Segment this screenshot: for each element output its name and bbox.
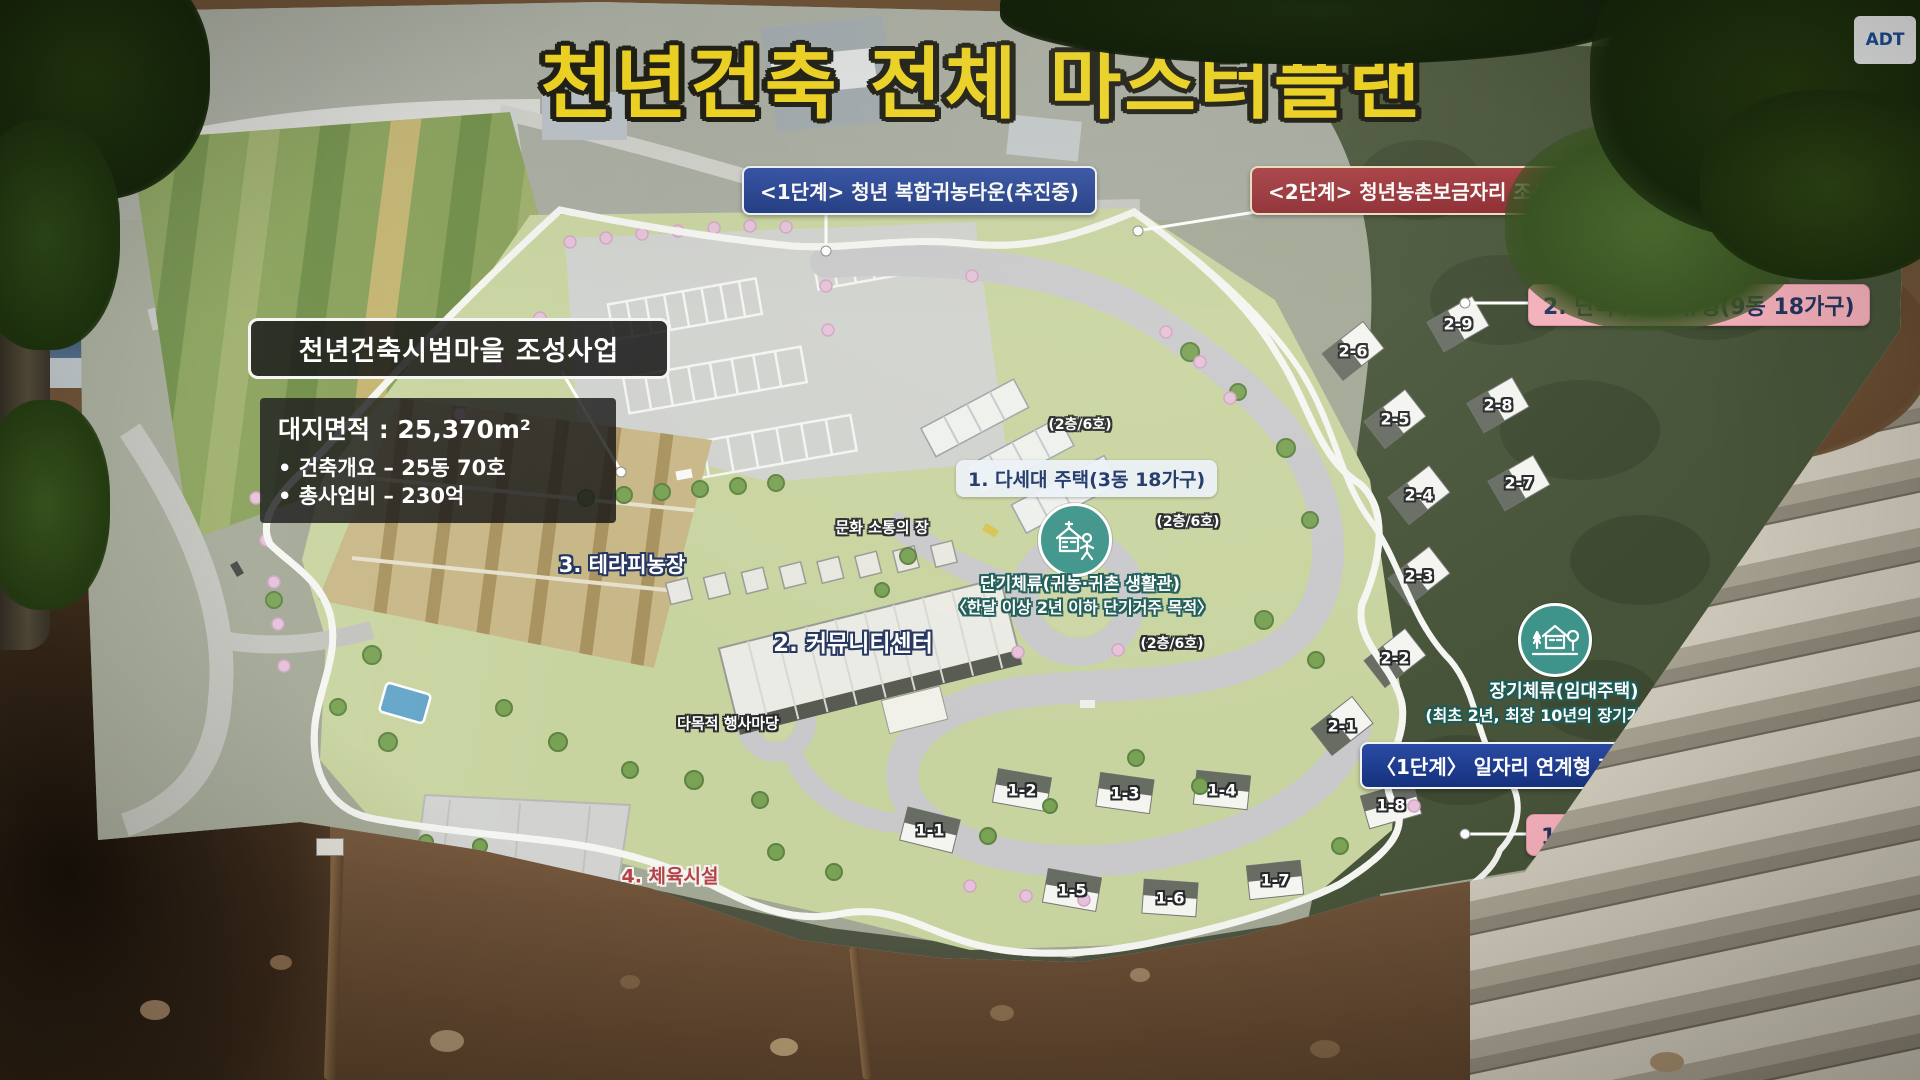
- long-stay-title: 장기체류(임대주택): [1490, 677, 1639, 703]
- stake-tag: [316, 838, 344, 856]
- stone: [620, 975, 640, 989]
- house-number: 1-6: [1156, 889, 1185, 908]
- stone: [770, 1038, 798, 1056]
- short-stay-subtitle: 〈한달 이상 2년 이하 단기거주 목적〉: [951, 594, 1213, 618]
- house-number: 2-5: [1381, 410, 1410, 429]
- tree-foliage: [1700, 90, 1920, 280]
- project-info-box: 대지면적 : 25,370m² • 건축개요 – 25동 70호 • 총사업비 …: [260, 398, 616, 523]
- house-number: 2-1: [1328, 717, 1357, 736]
- house-number: 1-4: [1208, 781, 1237, 800]
- short-stay-title: 단기체류(귀농·귀촌 생활관): [980, 570, 1180, 595]
- house-number: 1-3: [1111, 784, 1140, 803]
- stone: [1650, 1052, 1684, 1072]
- site-area: 대지면적 : 25,370m²: [278, 410, 598, 446]
- total-cost: • 총사업비 – 230억: [278, 482, 598, 510]
- house-number: 1-5: [1058, 881, 1087, 900]
- house-number: 1-1: [916, 821, 945, 840]
- community-center-label: 2. 커뮤니티센터: [773, 624, 933, 658]
- background-sign: ADT: [1854, 16, 1916, 64]
- house-trees-icon: [1529, 614, 1581, 666]
- stone: [990, 1005, 1014, 1021]
- house-number: 2-8: [1484, 396, 1513, 415]
- building-overview: • 건축개요 – 25동 70호: [278, 454, 598, 482]
- house-number: 2-3: [1405, 567, 1434, 586]
- event-yard-label: 다목적 행사마당: [677, 713, 779, 734]
- culture-plaza-label: 문화 소통의 장: [835, 517, 928, 538]
- floor-badge: (2층/6호): [1140, 633, 1203, 653]
- sports-facility-label: 4. 체육시설: [622, 862, 719, 889]
- short-stay-icon: [1038, 503, 1112, 577]
- floor-badge: (2층/6호): [1048, 414, 1111, 434]
- long-stay-icon: [1518, 603, 1592, 677]
- stone: [1130, 968, 1150, 982]
- house-number: 1-7: [1261, 871, 1290, 890]
- stage1-banner: <1단계> 청년 복합귀농타운(추진중): [742, 166, 1097, 215]
- house-number: 2-9: [1444, 315, 1473, 334]
- multiplex-housing-badge: 1. 다세대 주택(3동 18가구): [956, 460, 1217, 497]
- house-number: 2-7: [1505, 474, 1534, 493]
- house-number: 2-6: [1339, 342, 1368, 361]
- tree-foliage: [0, 400, 110, 610]
- stone: [430, 1030, 464, 1052]
- therapy-farm-label: 3. 테라피농장: [559, 549, 686, 579]
- tree-foliage: [0, 120, 120, 350]
- stone: [1310, 1040, 1340, 1058]
- house-number: 2-2: [1381, 649, 1410, 668]
- floor-badge: (2층/6호): [1156, 511, 1219, 531]
- photo-scene: 천년건축 전체 마스터플랜 <1단계> 청년 복합귀농타운(추진중) <2단계>…: [0, 0, 1920, 1080]
- house-number: 2-4: [1405, 486, 1434, 505]
- stone: [270, 955, 292, 970]
- background-sign-text: ADT: [1866, 30, 1905, 50]
- house-number: 1-2: [1008, 781, 1037, 800]
- project-title-box: 천년건축시범마을 조성사업: [248, 318, 670, 379]
- stone: [140, 1000, 170, 1020]
- house-number: 1-8: [1377, 796, 1406, 815]
- house-person-icon: [1049, 514, 1101, 566]
